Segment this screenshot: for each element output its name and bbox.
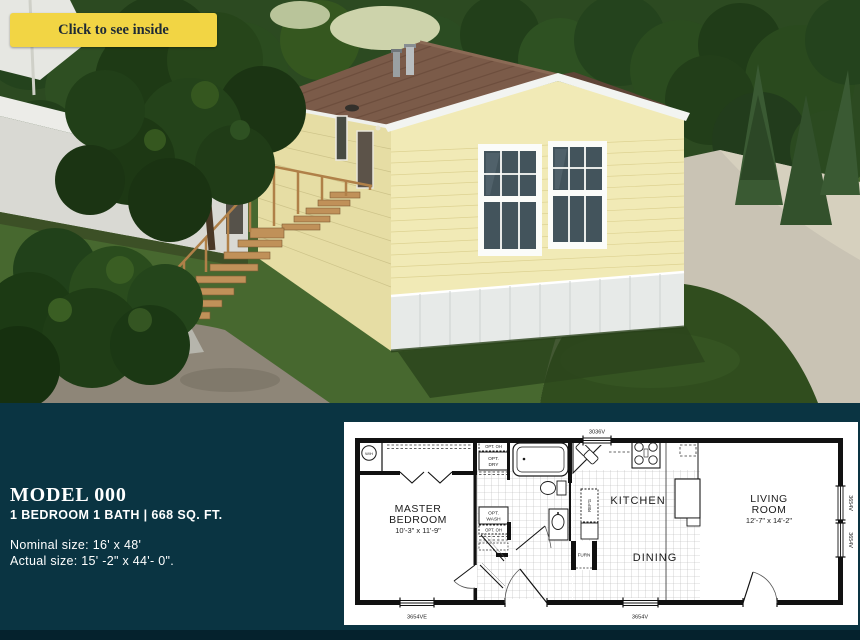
opt-oh-lower-label: OPT. OH (485, 528, 502, 533)
floorplan: OPT. OH OPT. DRY OPT. WASH OPT. OH (344, 422, 858, 625)
kitchen-label: KITCHEN (610, 495, 665, 507)
opt-dry-label-1: OPT. (488, 456, 499, 462)
window-bottom-left-label: 3654VE (407, 615, 427, 621)
window-right-upper-label: 3654V (847, 495, 853, 511)
exterior-photo (0, 0, 860, 403)
window-top: 3036V (583, 430, 611, 446)
closet-bifold-doors (400, 472, 452, 483)
window-top-label: 3036V (589, 430, 605, 436)
master-bedroom-label-2: BEDROOM (389, 514, 447, 526)
window-right-lower: 3654V (836, 523, 854, 557)
actual-size: Actual size: 15' -2" x 44'- 0". (10, 554, 223, 570)
floorplan-drawing: OPT. OH OPT. DRY OPT. WASH OPT. OH (344, 422, 858, 625)
footer-strip (0, 630, 860, 640)
bathroom-vanity (549, 509, 568, 540)
front-exterior-door (743, 572, 777, 607)
side-window (336, 116, 347, 160)
window-bottom-center: 3654V (623, 598, 658, 621)
porch-light (376, 126, 381, 131)
see-inside-button[interactable]: Click to see inside (10, 13, 217, 47)
window-bottom-center-label: 3654V (632, 615, 648, 621)
nominal-size: Nominal size: 16' x 48' (10, 538, 223, 554)
opt-oh-upper-label: OPT. OH (485, 444, 502, 449)
fridge-label: REF'G (587, 498, 592, 512)
side-door (357, 131, 373, 188)
window-right-upper: 3654V (836, 486, 854, 520)
dining-label: DINING (633, 552, 678, 564)
upper-cabinet-box (680, 445, 696, 456)
closet-shelf-lines (387, 445, 472, 449)
furnace-label: FURN (578, 553, 591, 558)
opt-wash-label-2: WASH (486, 517, 501, 523)
furnace-closet: FURN (571, 541, 597, 570)
water-heater: W/H (362, 446, 376, 460)
bathtub (513, 443, 568, 476)
kitchen-counter (675, 438, 700, 526)
window-bottom-left: 3654VE (400, 598, 434, 621)
opt-dry-label-2: DRY (488, 462, 499, 468)
page: Click to see inside MODEL 000 1 BEDROOM … (0, 0, 860, 640)
stove (632, 439, 660, 468)
exterior-photo-scene (0, 0, 860, 403)
window-right-lower-label: 3654V (847, 532, 853, 548)
living-room-dims: 12'-7" x 14'-2" (746, 516, 792, 525)
living-room-label-2: ROOM (752, 504, 787, 516)
opt-wash-label-1: OPT. (488, 511, 499, 517)
front-window-left (478, 144, 542, 256)
model-title: MODEL 000 (10, 485, 223, 506)
info-panel: MODEL 000 1 BEDROOM 1 BATH | 668 SQ. FT.… (10, 485, 223, 569)
toilet (541, 481, 567, 495)
master-bedroom-dims: 10'-3" x 11'-9" (395, 526, 441, 535)
model-subtitle: 1 BEDROOM 1 BATH | 668 SQ. FT. (10, 508, 223, 522)
front-window-right (548, 141, 607, 249)
fridge-box: REF'G (581, 489, 598, 539)
water-heater-label: W/H (365, 451, 373, 456)
